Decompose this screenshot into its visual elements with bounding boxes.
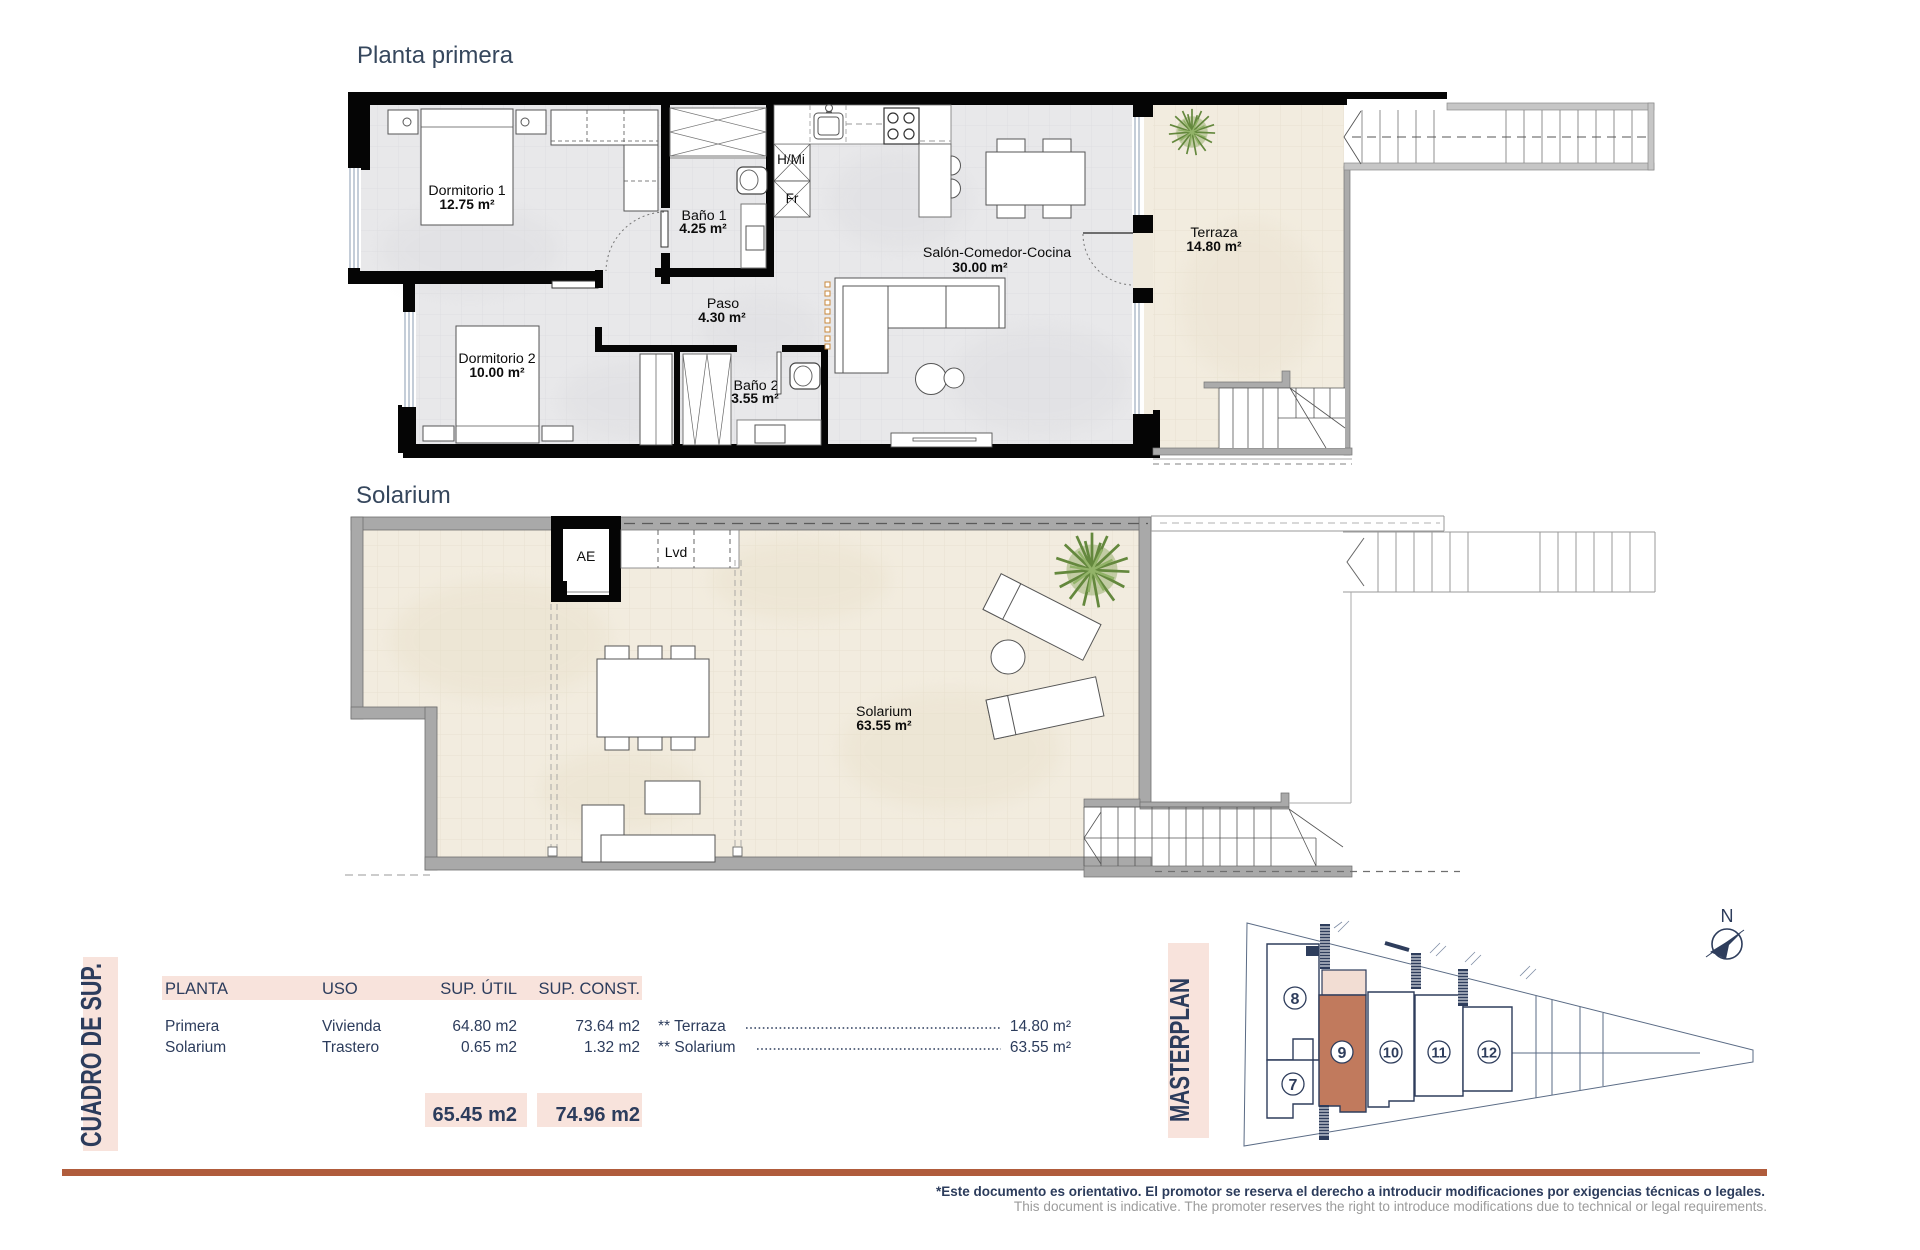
svg-text:Planta primera: Planta primera [357,42,514,69]
svg-text:** Terraza: ** Terraza [658,1018,726,1035]
svg-text:MASTERPLAN: MASTERPLAN [1164,978,1195,1122]
svg-text:10: 10 [1383,1046,1399,1062]
svg-text:4.30 m²: 4.30 m² [698,310,746,325]
svg-text:USO: USO [322,980,358,998]
svg-text:PLANTA: PLANTA [165,980,228,998]
svg-text:30.00 m²: 30.00 m² [952,260,1008,275]
svg-text:Solarium: Solarium [165,1039,226,1056]
svg-text:63.55 m²: 63.55 m² [1010,1039,1071,1056]
svg-text:SUP. CONST.: SUP. CONST. [539,980,640,998]
svg-text:SUP. ÚTIL: SUP. ÚTIL [440,979,517,998]
svg-text:11: 11 [1431,1046,1446,1062]
svg-text:8: 8 [1291,991,1300,1008]
svg-text:AE: AE [577,548,596,564]
svg-text:12: 12 [1481,1046,1497,1062]
svg-text:Vivienda: Vivienda [322,1018,382,1035]
svg-text:73.64 m2: 73.64 m2 [575,1018,640,1035]
svg-text:*Este documento es orientativo: *Este documento es orientativo. El promo… [936,1184,1765,1199]
svg-text:64.80 m2: 64.80 m2 [452,1018,517,1035]
svg-text:Primera: Primera [165,1018,220,1035]
svg-text:Trastero: Trastero [322,1039,379,1056]
svg-text:Salón-Comedor-Cocina: Salón-Comedor-Cocina [923,245,1071,261]
svg-text:H/Mi: H/Mi [777,152,805,167]
svg-text:14.80 m²: 14.80 m² [1010,1018,1071,1035]
svg-text:1.32 m2: 1.32 m2 [584,1039,640,1056]
svg-text:74.96 m2: 74.96 m2 [555,1104,640,1126]
svg-text:Lvd: Lvd [665,544,688,560]
svg-text:7: 7 [1289,1077,1298,1094]
svg-text:9: 9 [1338,1045,1347,1062]
svg-text:14.80 m²: 14.80 m² [1186,239,1242,254]
svg-text:Fr: Fr [786,191,799,206]
svg-text:** Solarium: ** Solarium [658,1039,736,1056]
svg-text:10.00 m²: 10.00 m² [469,365,525,380]
svg-text:12.75 m²: 12.75 m² [439,197,495,212]
svg-text:N: N [1721,906,1734,926]
svg-text:65.45 m2: 65.45 m2 [432,1104,517,1126]
svg-text:Solarium: Solarium [356,482,451,509]
svg-text:CUADRO DE SUP.: CUADRO DE SUP. [76,963,108,1147]
svg-text:63.55 m²: 63.55 m² [856,718,912,733]
svg-text:3.55 m²: 3.55 m² [731,391,779,406]
svg-text:This document is indicative. T: This document is indicative. The promote… [1014,1199,1767,1214]
svg-text:0.65 m2: 0.65 m2 [461,1039,517,1056]
svg-text:4.25 m²: 4.25 m² [679,221,727,236]
